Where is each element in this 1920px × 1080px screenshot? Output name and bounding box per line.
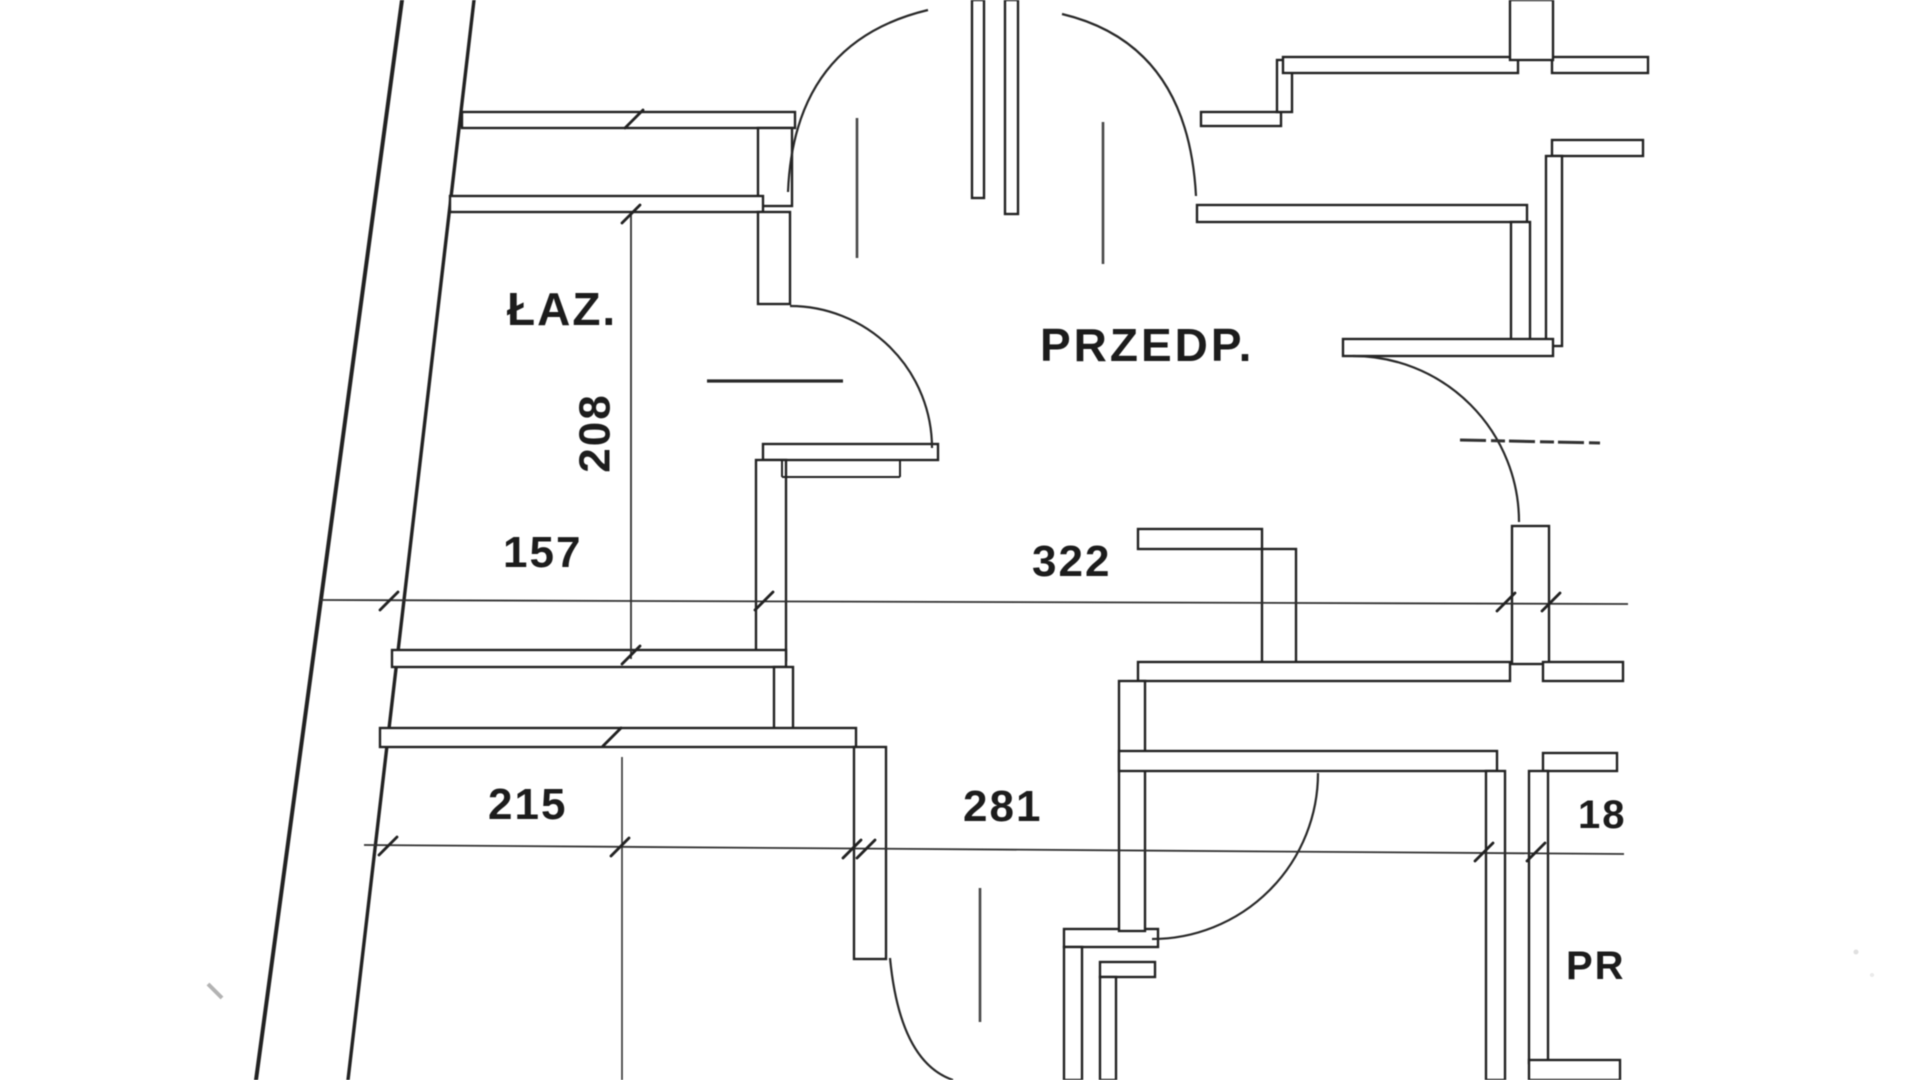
right-room-door-arc bbox=[1353, 356, 1519, 522]
bottom-door-arc bbox=[890, 958, 953, 1080]
dim-line-lower bbox=[364, 845, 1624, 854]
floor-plan-drawing bbox=[0, 0, 1920, 1080]
entrance-right-door-arc bbox=[1062, 14, 1196, 196]
dim-label-208: 208 bbox=[571, 393, 621, 472]
dim-label-18: 18 bbox=[1578, 793, 1627, 838]
dim-label-322: 322 bbox=[1032, 537, 1111, 587]
niche-ledge bbox=[782, 460, 900, 477]
dim-line-upper bbox=[320, 600, 1628, 604]
room-label-hallway: PRZEDP. bbox=[1040, 318, 1254, 372]
door-leaves-group bbox=[707, 118, 1600, 1022]
room-label-bathroom: ŁAZ. bbox=[507, 282, 617, 336]
dim-label-157: 157 bbox=[503, 528, 582, 578]
outer-slanted-wall bbox=[256, 0, 474, 1080]
bathroom-door-arc bbox=[790, 306, 932, 448]
floor-plan-scan: ŁAZ. 208 157 PRZEDP. 322 215 281 18 PR bbox=[0, 0, 1920, 1080]
room-label-pr: PR bbox=[1566, 944, 1626, 989]
dim-label-281: 281 bbox=[963, 782, 1042, 832]
lower-room-door-arc bbox=[1152, 773, 1318, 939]
floor-plan-page: ŁAZ. 208 157 PRZEDP. 322 215 281 18 PR bbox=[0, 0, 1920, 1080]
dashed-marker-line bbox=[1460, 440, 1600, 443]
dim-label-215: 215 bbox=[488, 780, 567, 830]
